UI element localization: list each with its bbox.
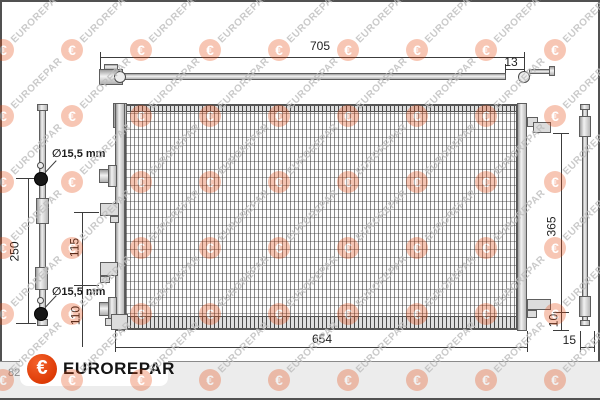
- dim-654-tick-left: [115, 331, 116, 352]
- watermark-text: EUROREPAR: [423, 0, 479, 45]
- dim-365-tick-top: [553, 133, 569, 134]
- watermark-logo-icon: €: [0, 39, 14, 61]
- part-number-partial: 82: [8, 367, 20, 379]
- left-bracket-upper-tab: [110, 216, 119, 223]
- watermark-text: EUROREPAR: [561, 188, 600, 244]
- port-diameter-top-label: ∅15,5 mm: [52, 147, 105, 160]
- outlet-port-cylinder: [99, 302, 109, 316]
- left-bracket-lower-tab: [100, 276, 110, 283]
- top-view-connector-ring: [114, 71, 126, 83]
- top-view-end-bracket: [529, 69, 551, 74]
- watermark-logo-icon: €: [0, 171, 14, 193]
- watermark-logo-icon: €: [544, 39, 566, 61]
- port-bottom-small-ring: [37, 297, 44, 304]
- dim-115-label: 115: [69, 234, 82, 262]
- inlet-port-cylinder: [99, 169, 109, 183]
- side-view-right-block-top: [579, 116, 591, 137]
- right-bracket-lower: [527, 299, 551, 310]
- top-view-end-bracket-tab: [549, 66, 555, 76]
- port-diameter-top-leader: [45, 160, 57, 172]
- side-view-right-bottom-cap: [580, 320, 590, 326]
- eurorepar-logo-icon: €: [27, 354, 57, 384]
- side-view-right-top-cap: [580, 104, 590, 110]
- inlet-port-flange: [108, 165, 117, 187]
- watermark-logo-icon: €: [61, 171, 83, 193]
- left-bracket-upper: [100, 203, 119, 216]
- core-bottom-fin-band: [126, 316, 516, 329]
- top-view-pipe-end-ring: [518, 71, 530, 83]
- dim-15-label: 15: [552, 334, 576, 347]
- port-bottom: [34, 307, 48, 321]
- dim-705-line: [100, 57, 525, 58]
- watermark-text: EUROREPAR: [354, 0, 410, 45]
- bottom-left-end-tab: [105, 318, 112, 326]
- dim-10-tick-bottom: [553, 330, 569, 331]
- dim-13-line: [505, 69, 524, 70]
- watermark-logo-icon: €: [61, 39, 83, 61]
- dim-250-tick-bottom: [16, 323, 36, 324]
- bottom-left-end-block: [111, 314, 128, 330]
- side-view-left-block-mid: [36, 198, 49, 224]
- technical-drawing-page: 705 13 250 ∅15,5 mm ∅15,5 mm: [0, 0, 600, 400]
- dim-250-label: 250: [9, 238, 22, 266]
- port-top-small-ring: [37, 162, 44, 169]
- side-view-right-tube: [582, 104, 588, 326]
- port-top: [34, 172, 48, 186]
- watermark-text: EUROREPAR: [216, 0, 272, 45]
- watermark-text: EUROREPAR: [492, 0, 548, 45]
- dim-250-line: [28, 178, 29, 324]
- dim-654-line: [115, 347, 527, 348]
- watermark-text: EUROREPAR: [9, 0, 65, 45]
- watermark-logo-icon: €: [0, 303, 14, 325]
- watermark-logo-icon: €: [0, 105, 14, 127]
- dim-15-tick-right: [594, 331, 595, 352]
- left-bracket-lower: [100, 262, 118, 276]
- side-view-left-block-low: [35, 267, 48, 290]
- port-diameter-bottom-leader: [45, 295, 57, 307]
- watermark-logo-icon: €: [61, 105, 83, 127]
- condenser-core-mesh: [125, 104, 517, 330]
- watermark-text: EUROREPAR: [147, 0, 203, 45]
- dim-13-label: 13: [499, 56, 523, 69]
- dim-15-tick-left: [580, 331, 581, 352]
- dim-115-ext-top: [83, 212, 99, 213]
- dim-705-label: 705: [298, 40, 342, 53]
- dim-250-tick-top: [16, 178, 36, 179]
- watermark-logo-icon: €: [544, 171, 566, 193]
- top-view-tube: [122, 73, 506, 80]
- dim-705-tick-left: [100, 52, 101, 70]
- right-bracket-lower-tab: [527, 310, 537, 318]
- dim-110-label: 110: [70, 302, 83, 330]
- brand-name: EUROREPAR: [63, 359, 175, 379]
- right-tank: [517, 103, 527, 331]
- right-bracket-upper: [533, 122, 551, 133]
- dim-365-label: 365: [546, 213, 559, 241]
- port-diameter-bottom-label: ∅15,5 mm: [52, 285, 105, 298]
- watermark-text: EUROREPAR: [78, 0, 134, 45]
- dim-365-10-line: [561, 133, 562, 330]
- dim-15-line: [580, 347, 594, 348]
- dim-654-label: 654: [300, 333, 344, 346]
- watermark-text: EUROREPAR: [561, 0, 600, 45]
- side-view-right-block-bottom: [579, 296, 591, 317]
- core-top-fin-band: [126, 105, 516, 112]
- dim-654-tick-right: [527, 331, 528, 352]
- dim-10-label: 10: [548, 313, 561, 329]
- side-view-left-top-cap: [37, 104, 48, 111]
